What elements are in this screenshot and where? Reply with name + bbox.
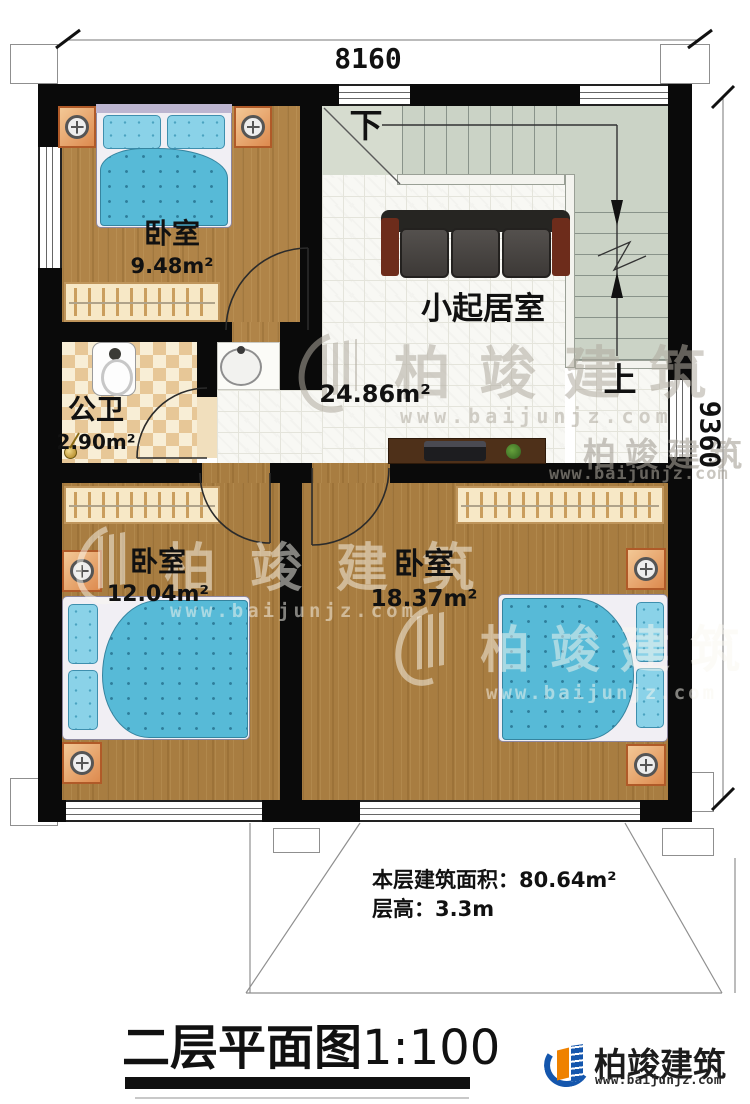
- brand-site: www.baijunjz.com: [595, 1072, 722, 1087]
- stairs-down-label: 下: [350, 108, 383, 144]
- room-area: 18.37m²: [371, 586, 478, 612]
- dimension-top: 8160: [334, 44, 401, 74]
- floor-area-value: 80.64m²: [519, 868, 617, 892]
- room-label-living: 小起居室: [421, 292, 545, 325]
- room-label-bedroom-tl: 卧室 9.48m²: [131, 219, 214, 279]
- floor-notes: 本层建筑面积：80.64m² 层高：3.3m: [372, 866, 617, 924]
- room-label-bedroom-bl: 卧室 12.04m²: [107, 547, 209, 607]
- brand-logo-icon: [543, 1042, 591, 1088]
- room-name: 卧室: [130, 546, 186, 577]
- logo-building-orange: [557, 1048, 569, 1081]
- room-area: 12.04m²: [107, 582, 209, 607]
- floor-plan-page: 柏竣建筑 www.baijunjz.com 柏竣建筑 www.baijunjz.…: [0, 0, 750, 1104]
- room-label-bathroom: 公卫 2.90m²: [57, 395, 136, 455]
- room-label-bedroom-br: 卧室 18.37m²: [371, 549, 478, 614]
- title-underline-bar: [125, 1077, 470, 1089]
- floor-area-note: 本层建筑面积：80.64m²: [372, 866, 617, 895]
- room-name: 卧室: [144, 218, 200, 249]
- floor-height-label: 层高：: [372, 898, 435, 921]
- drawing-title: 二层平面图1:100: [122, 1008, 500, 1078]
- room-area-living: 24.86m²: [319, 382, 430, 408]
- stairs-up-label: 上: [604, 362, 637, 398]
- room-name: 卧室: [394, 548, 454, 581]
- logo-building-blue: [571, 1044, 583, 1082]
- room-name: 公卫: [68, 394, 124, 425]
- drawing-title-name: 二层平面图: [122, 1022, 362, 1075]
- floor-area-label: 本层建筑面积：: [372, 869, 519, 892]
- floor-height-note: 层高：3.3m: [372, 895, 617, 924]
- title-underline-thin: [135, 1097, 469, 1099]
- floor-height-value: 3.3m: [435, 897, 494, 921]
- drawing-title-scale: 1:100: [362, 1020, 500, 1076]
- dimension-right: 9360: [694, 390, 727, 480]
- room-area: 2.90m²: [57, 430, 136, 454]
- room-area: 9.48m²: [131, 254, 214, 278]
